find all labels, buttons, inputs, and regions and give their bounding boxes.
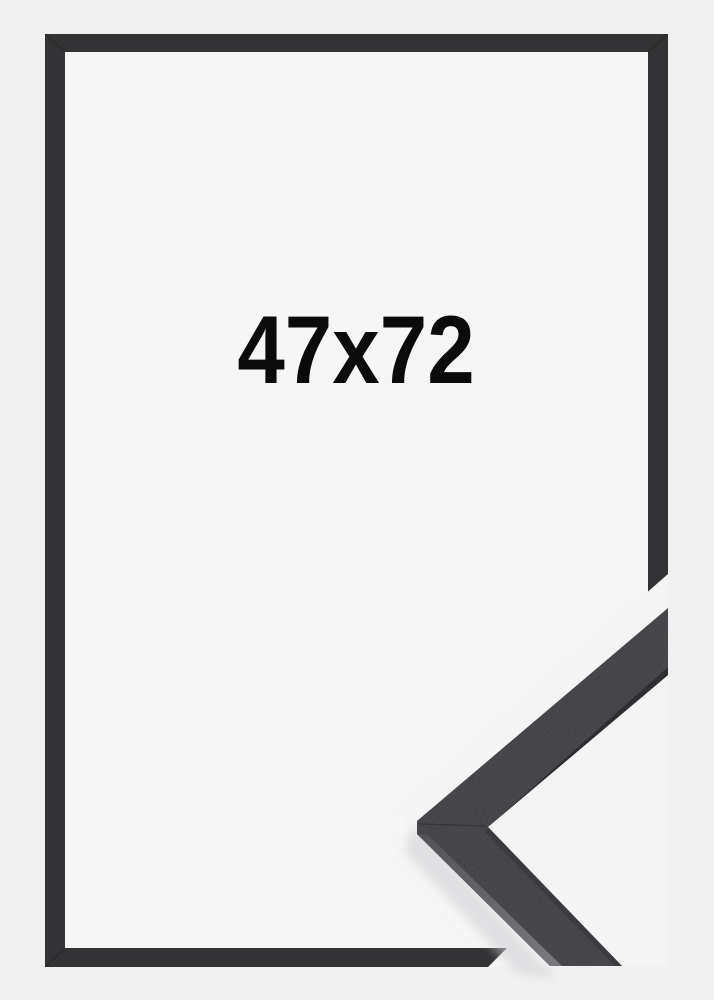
- frame-left-bar: [45, 34, 65, 967]
- product-photo: 47x72: [0, 0, 714, 1000]
- frame-top-bar: [45, 34, 668, 52]
- frame-product-image: 47x72: [0, 0, 714, 1000]
- size-label: 47x72: [237, 296, 474, 404]
